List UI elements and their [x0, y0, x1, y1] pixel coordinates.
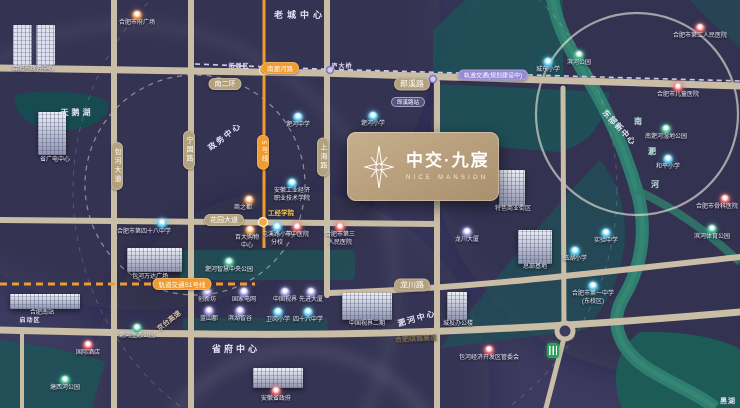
poi-marker — [575, 51, 584, 60]
poi-marker — [696, 24, 705, 33]
building — [13, 25, 55, 65]
poi-label: 中国视界 — [273, 297, 297, 305]
poi-marker — [369, 112, 378, 121]
poi-marker — [133, 324, 142, 333]
poi-label: 淝河生态公园 — [119, 333, 155, 341]
poi-label: 商之都 — [234, 205, 252, 213]
building — [447, 292, 467, 320]
poi-marker — [294, 113, 303, 122]
area-label: 庐大桥 — [331, 61, 352, 70]
metro-label: 轨道交通S1号线 — [153, 278, 212, 290]
road-label: 龙川路 — [394, 279, 430, 292]
poi-label: 实验中学 — [594, 238, 618, 246]
compass-star-icon — [361, 144, 397, 190]
poi-label: 合肥市府广场 — [119, 20, 155, 28]
poi-marker — [274, 308, 283, 317]
area-label: 河 — [651, 179, 659, 190]
poi-marker — [245, 196, 254, 205]
metro-label: 郎溪路站 — [391, 97, 425, 107]
project-name-cn: 中交·九宸 — [406, 152, 490, 171]
poi-marker — [721, 195, 730, 204]
area-label: 老城中心 — [274, 8, 326, 21]
poi-marker — [485, 346, 494, 355]
area-label: 省府中心 — [212, 342, 260, 355]
area-label: 拓展区 — [228, 61, 249, 70]
road-label: 南二环 — [209, 78, 242, 90]
poi-label: 合肥市儿童医院 — [657, 92, 699, 100]
road-label: 包河大道 — [111, 142, 123, 190]
poi-marker — [246, 226, 255, 235]
poi-marker — [281, 288, 290, 297]
building-label: 中国视界二期 — [349, 321, 385, 329]
poi-marker — [272, 387, 281, 396]
building — [342, 293, 392, 320]
poi-label: 南淝河湿地公园 — [645, 134, 687, 142]
poi-marker — [240, 288, 249, 297]
poi-label: 淝河智慧中央公园 — [205, 267, 253, 275]
poi-label: 合肥市第四十八中学 — [117, 229, 171, 237]
poi-label: 合肥市第三人民医院 — [325, 232, 355, 248]
project-name-en: NICE MANSION — [406, 175, 490, 181]
poi-label: 蓝山郡 — [200, 316, 218, 324]
poi-label: 滨河公园 — [567, 60, 591, 68]
poi-label: 国际酒店 — [76, 350, 100, 358]
poi-marker — [674, 83, 683, 92]
metro-label: 南淝河路 — [261, 62, 299, 74]
poi-marker — [61, 376, 70, 385]
building — [10, 294, 80, 309]
poi-marker — [293, 223, 302, 232]
building-label: 城投办公楼 — [443, 321, 473, 329]
roundabout — [557, 323, 573, 339]
metro-station-dot — [259, 218, 268, 227]
building — [518, 230, 552, 264]
poi-label: 滨河体育公园 — [694, 234, 730, 242]
poi-marker — [133, 11, 142, 20]
building — [127, 248, 182, 272]
poi-label: 国家电网 — [232, 297, 256, 305]
metro-entrance-icon — [547, 343, 559, 358]
poi-label: 淝河中学 — [286, 122, 310, 130]
poi-label: 城东小学 — [536, 67, 560, 75]
poi-marker — [205, 307, 214, 316]
area-label: 天鹅湖 — [61, 107, 94, 118]
poi-marker — [336, 223, 345, 232]
road-label: 宁国路 — [183, 131, 195, 170]
area-label: 南 — [634, 116, 642, 127]
poi-marker — [664, 155, 673, 164]
poi-marker — [84, 341, 93, 350]
poi-marker — [708, 225, 717, 234]
poi-marker — [288, 179, 297, 188]
poi-label: 临湖小学 — [563, 256, 587, 264]
poi-marker — [463, 228, 472, 237]
poi-marker — [589, 282, 598, 291]
poi-label: 滨湖智谷 — [228, 316, 252, 324]
road-label: 花园大道 — [204, 214, 244, 226]
map-base-layer — [0, 0, 740, 408]
poi-label: 卫岗小学 — [266, 317, 290, 325]
building-label: 总部基地 — [523, 264, 547, 272]
poi-marker — [273, 223, 282, 232]
poi-label: 市中医院 — [285, 232, 309, 240]
poi-marker — [225, 258, 234, 267]
building-label: 省广电中心 — [40, 157, 70, 165]
poi-label: 先进大厦 — [299, 297, 323, 305]
road-label: 上海路 — [317, 138, 329, 177]
poi-label: 和平小学 — [656, 164, 680, 172]
poi-marker — [662, 125, 671, 134]
poi-label: 合肥市第一中学(东校区) — [572, 291, 614, 307]
building — [499, 170, 525, 206]
building — [38, 112, 66, 155]
metro-label: 5号线 — [257, 135, 269, 170]
poi-label: 包河经济开发区管委会 — [459, 355, 519, 363]
poi-marker — [236, 307, 245, 316]
poi-label: 淝河小学 — [361, 121, 385, 129]
building — [253, 368, 303, 388]
metro-station-dot — [430, 76, 437, 83]
poi-marker — [304, 308, 313, 317]
metro-label: 轨道交通(规划建设中) — [458, 70, 528, 81]
poi-label: 安徽工业经济职业技术学院 — [274, 188, 310, 204]
building-label: 合肥南站 — [30, 310, 54, 318]
poi-marker — [158, 219, 167, 228]
poi-marker — [544, 58, 553, 67]
poi-marker — [571, 247, 580, 256]
poi-marker — [307, 288, 316, 297]
road-name-text: 工经学院 — [268, 207, 294, 217]
area-label: 黑湖 — [720, 396, 736, 406]
poi-label: 龙川大厦 — [455, 237, 479, 245]
poi-label: 百大购物中心 — [235, 235, 259, 251]
poi-label: 创新坊 — [198, 297, 216, 305]
project-logo-card: 中交·九宸 NICE MANSION — [347, 132, 499, 201]
poi-marker — [602, 229, 611, 238]
poi-label: 塘西河公园 — [50, 385, 80, 393]
area-label: 淝 — [648, 146, 656, 157]
poi-label: 四十六中学 — [293, 317, 323, 325]
poi-label: 安徽省政府 — [261, 396, 291, 404]
location-map: 中交·九宸 NICE MANSION 老城中心天鹅湖政务中心省府中心淝河中心东部… — [0, 0, 740, 408]
building-label: 合肥市政务中心 — [12, 66, 54, 74]
poi-label: 合肥市第二人民医院 — [673, 33, 727, 41]
poi-label: 合肥市骨科医院 — [696, 204, 738, 212]
road-label: 郎溪路 — [394, 78, 430, 91]
building-label: 特色商业街区 — [495, 206, 531, 214]
